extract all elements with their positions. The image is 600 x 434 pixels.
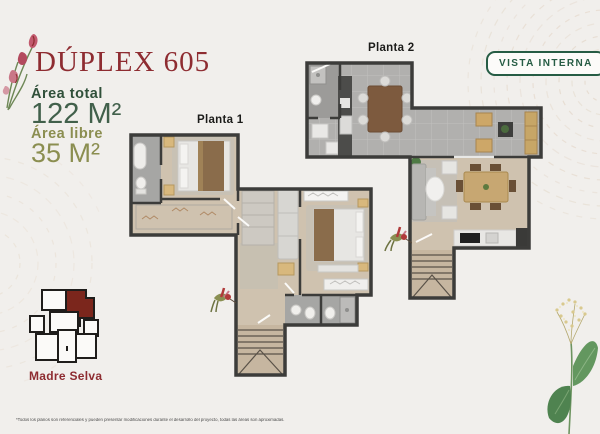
area-libre-value: 35 M² — [31, 138, 100, 169]
planta1-bedroom1 — [164, 137, 234, 195]
disclaimer-text: *Todos los planos son referenciales y pu… — [16, 418, 326, 422]
duplex-605-brochure-page: DÚPLEX 605 Área total 122 M² Área libre … — [0, 0, 600, 434]
floorplan-planta2 — [304, 60, 544, 305]
leaf-illustration — [533, 292, 599, 434]
planta2-living — [411, 157, 457, 222]
brand-name: Madre Selva — [29, 369, 102, 383]
building-keyplan — [28, 288, 100, 366]
hummingbird-icon — [384, 222, 412, 252]
page-title: DÚPLEX 605 — [35, 46, 210, 79]
planta2-label: Planta 2 — [368, 42, 415, 54]
planta2-kitchen-counter — [454, 228, 529, 248]
planta1-label: Planta 1 — [197, 114, 244, 126]
planta1-lounge — [240, 189, 298, 289]
hummingbird-icon — [210, 284, 236, 314]
